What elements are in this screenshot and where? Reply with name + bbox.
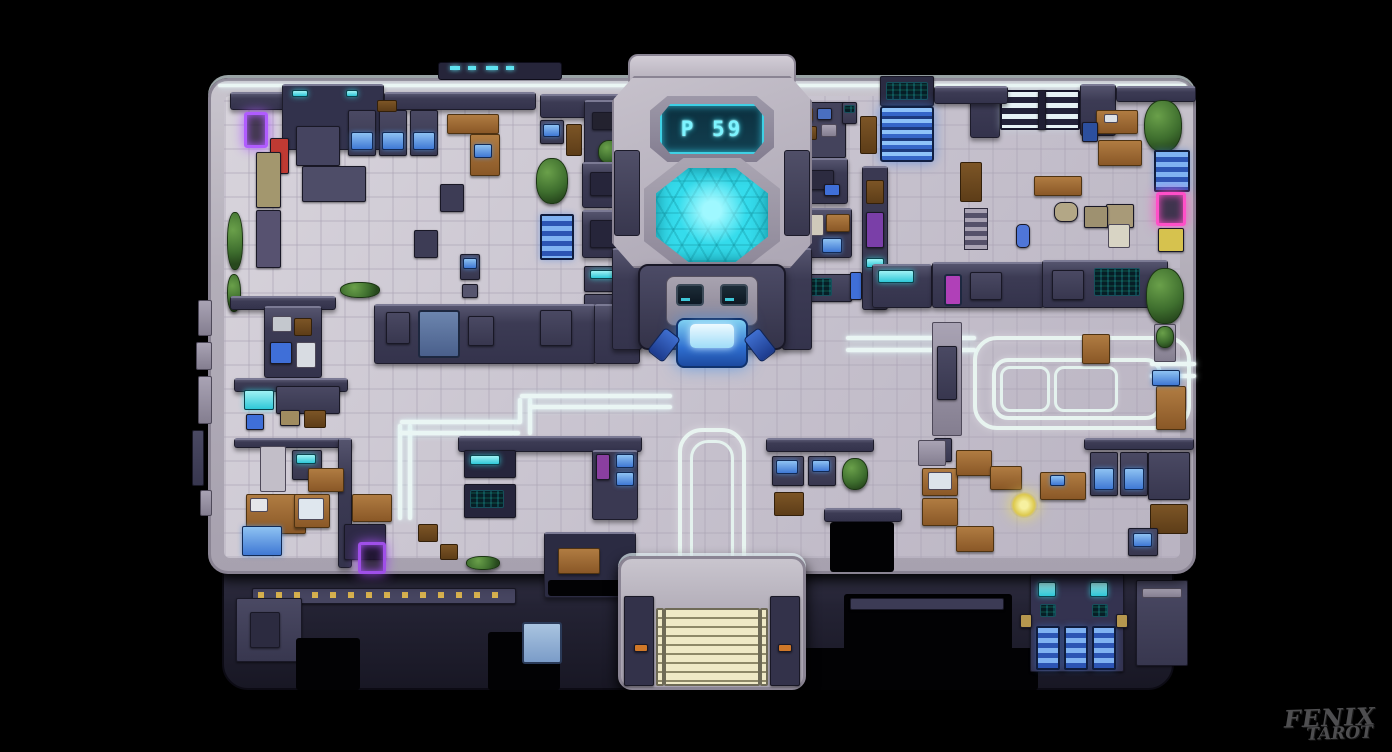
ll-map-top <box>298 498 324 520</box>
rt-tree <box>1144 100 1182 152</box>
cb-locker-purple <box>596 454 610 480</box>
office-chair-2 <box>414 230 438 258</box>
entrance-rail-left <box>656 608 664 686</box>
wall-lowerleft-b <box>234 438 352 448</box>
path-u1 <box>520 394 672 398</box>
column-locker-purple <box>866 212 884 248</box>
cb-desk-wood <box>558 548 600 574</box>
vending-screen-cyan-1 <box>1038 582 1056 597</box>
sofa-dark-2 <box>302 166 366 202</box>
hedge-2 <box>466 556 500 570</box>
cb-console-a-screen <box>470 455 500 465</box>
track-locker-panel <box>937 346 957 400</box>
workstation-screen-2[interactable] <box>382 132 404 150</box>
sign-cyan[interactable] <box>244 390 274 410</box>
cl-plant-column <box>536 158 568 204</box>
ll-crate-khaki <box>280 410 300 426</box>
band-b-machine <box>970 272 1002 300</box>
cbr-cabinet <box>774 492 804 516</box>
terminal-small-screen <box>463 258 477 269</box>
basement-void-1 <box>296 638 360 690</box>
rb-machine-blue-1-front[interactable] <box>1094 468 1114 490</box>
wall-topleft-b <box>384 92 536 110</box>
stairs-white-rail <box>1038 90 1046 130</box>
locker-blue-1[interactable] <box>1036 626 1060 670</box>
mid-band-door[interactable] <box>418 310 460 358</box>
closet-screen-2 <box>346 90 358 97</box>
workstation-screen-3[interactable] <box>413 132 435 150</box>
hull-greeble-4 <box>192 430 204 486</box>
atrium-pool <box>656 168 768 262</box>
tr-crate-gray <box>821 124 837 137</box>
neon-frame-purple[interactable] <box>244 112 268 148</box>
rs-bed-blue <box>270 342 292 364</box>
wall-mid-right-top <box>934 86 1008 104</box>
ll-crate-wood <box>304 410 326 428</box>
code-machine <box>1052 270 1084 300</box>
ll-desk-3 <box>352 494 392 522</box>
cbr-plant <box>842 458 868 490</box>
rb-machine-blue-2-front[interactable] <box>1124 468 1144 490</box>
rb-lamp-yellow <box>1010 492 1038 518</box>
shelf-dark <box>256 210 281 268</box>
locker-blue-3[interactable] <box>1092 626 1116 670</box>
locker-blue-2[interactable] <box>1064 626 1088 670</box>
tr-green-screen <box>844 105 855 113</box>
cbr-machine-2-screen <box>812 460 830 472</box>
mid-jug-blue <box>1016 224 1030 248</box>
ll-console-screen <box>296 454 316 464</box>
rb-dome-blue <box>1050 475 1065 486</box>
path-j1 <box>518 398 522 424</box>
mid-band-machine-1 <box>386 312 410 344</box>
path-h1 <box>400 420 520 424</box>
vending-gold-tab-2 <box>1116 614 1128 628</box>
stool-2 <box>418 524 438 542</box>
vending-screen-cyan-2 <box>1090 582 1108 597</box>
cl-shelf-blue <box>540 214 574 260</box>
basement-panel-door <box>250 612 280 648</box>
mid-band-machine-3 <box>540 310 572 346</box>
ll-blue-item <box>246 414 264 430</box>
vending-gold-tab-1 <box>1020 614 1032 628</box>
mid-bench-wood <box>1034 176 1082 196</box>
basement-right-panel <box>1142 588 1182 598</box>
rb-locker <box>1148 452 1190 500</box>
ll-door-plate <box>260 446 286 492</box>
rs-desk-papers <box>272 316 292 332</box>
cb-screen-1 <box>616 454 634 468</box>
column-crate <box>866 180 884 204</box>
stairs-blue[interactable] <box>880 106 934 162</box>
rt-chair-yellow <box>1158 228 1184 252</box>
hull-greeble-3 <box>198 376 212 424</box>
rb-table-map <box>928 472 952 490</box>
roof-light-1 <box>450 66 460 70</box>
wood-box-top <box>377 100 397 112</box>
basement-door[interactable] <box>522 622 562 664</box>
track-table-wood <box>1082 334 1110 364</box>
stairwell-header-screen <box>886 82 928 100</box>
hull-greeble-1 <box>198 300 212 336</box>
mid-crate-khaki <box>1084 206 1108 228</box>
entrance-pillar-left <box>624 596 654 686</box>
rb-wall <box>1084 438 1194 450</box>
wall-topright <box>1116 86 1196 102</box>
door-magenta[interactable] <box>944 274 962 306</box>
cbr-wall <box>766 438 874 452</box>
plant-left-1 <box>227 212 243 270</box>
rb-terminal-screen <box>1133 533 1152 547</box>
rb-table-2 <box>956 450 992 476</box>
track-cabinet <box>1156 386 1186 430</box>
ll-bed-pillow <box>250 498 268 512</box>
artist-signature: FENIX TAROT <box>1283 706 1376 743</box>
console-screen-left <box>676 284 704 306</box>
code-screen <box>1094 268 1140 296</box>
track-tree <box>1146 268 1184 324</box>
vending-screen-dark-1 <box>1040 604 1056 617</box>
cb-screen-2 <box>616 472 634 486</box>
path-h2 <box>400 431 520 435</box>
entrance-stairs[interactable] <box>664 608 760 686</box>
cbr-void <box>830 522 894 572</box>
path-v1 <box>398 424 402 520</box>
arcade-neon-screen[interactable] <box>358 542 386 574</box>
rt-shelf-blue <box>1154 150 1190 192</box>
office-chair-1 <box>440 184 464 212</box>
roof-light-2 <box>468 66 476 70</box>
stool-1 <box>462 284 478 298</box>
basement-void-4 <box>788 648 1038 690</box>
desk-wood-L1 <box>447 114 499 134</box>
roof-light-3 <box>486 66 498 70</box>
holo-projector-light <box>690 324 734 348</box>
path-v2 <box>408 424 412 520</box>
track-planter-plant <box>1156 326 1174 348</box>
cabinet-beside-stairs <box>860 116 877 154</box>
rt-desk-paper <box>1104 114 1118 123</box>
signature-line-2: TAROT <box>1306 726 1377 743</box>
status-display-screen: P 59 <box>660 104 764 154</box>
rs-fridge <box>296 342 316 368</box>
tower-slab-left <box>614 150 640 236</box>
shelf-tan <box>256 152 281 208</box>
vending-screen-dark-2 <box>1092 604 1108 617</box>
tr-band-blue <box>850 272 862 300</box>
console-screen-right <box>720 284 748 306</box>
tr-blue-box <box>824 184 840 196</box>
track-screen-blue <box>1152 370 1180 386</box>
ll-desk-2 <box>308 468 344 492</box>
entrance-rail-right <box>760 608 768 686</box>
entrance-tag-right <box>778 644 792 652</box>
hedge-1 <box>340 282 380 298</box>
track-cell-left <box>1000 366 1050 412</box>
cl-arcade-screen[interactable] <box>543 124 560 137</box>
rb-table-3 <box>922 498 958 526</box>
ll-tv-blue[interactable] <box>242 526 282 556</box>
path-j2 <box>528 398 532 435</box>
hull-greeble-2 <box>196 342 212 370</box>
rt-chair-blue <box>1082 122 1098 142</box>
tr-crate-w <box>826 214 850 232</box>
roof-light-4 <box>506 66 514 70</box>
path-u2 <box>530 405 672 409</box>
rt-desk-2 <box>1098 140 1142 166</box>
mid-easel <box>1108 224 1130 248</box>
stool-3 <box>440 544 458 560</box>
band-a-screen <box>878 270 914 283</box>
cbr-wall-2 <box>824 508 902 522</box>
rb-chair-gray <box>918 440 946 466</box>
basement-greeble-row <box>850 598 1004 610</box>
roof-greeble <box>438 62 562 80</box>
workstation-screen-1[interactable] <box>351 132 373 150</box>
track-cell-right <box>1054 366 1118 412</box>
cl-shelf-orange <box>566 124 582 156</box>
mid-cabinet-wood <box>960 162 982 202</box>
tr-terminal[interactable] <box>822 238 842 253</box>
cb-console-b-screen <box>470 490 504 508</box>
status-display-text: P 59 <box>681 117 744 141</box>
hull-greeble-5 <box>200 490 212 516</box>
sofa-dark-1 <box>296 126 340 166</box>
pixel-art-station-map: P 59 FENIX TAROT <box>0 0 1392 752</box>
mid-band-machine-2 <box>468 316 494 346</box>
tr-crate-blue <box>817 108 832 120</box>
mid-sack <box>1054 202 1078 222</box>
rt-neon-pink[interactable] <box>1156 192 1186 226</box>
cbr-machine-1-screen <box>776 460 798 474</box>
desk-screen[interactable] <box>474 144 492 158</box>
entrance-tag-left <box>634 644 648 652</box>
tower-slab-right <box>784 150 810 236</box>
rs-crate-wood <box>294 318 312 336</box>
closet-screen-1 <box>292 90 308 97</box>
rb-table-5 <box>990 466 1022 490</box>
mid-ladder <box>964 208 988 250</box>
rb-table-4 <box>956 526 994 552</box>
entrance-pillar-right <box>770 596 800 686</box>
track-tail-1 <box>1150 362 1196 366</box>
